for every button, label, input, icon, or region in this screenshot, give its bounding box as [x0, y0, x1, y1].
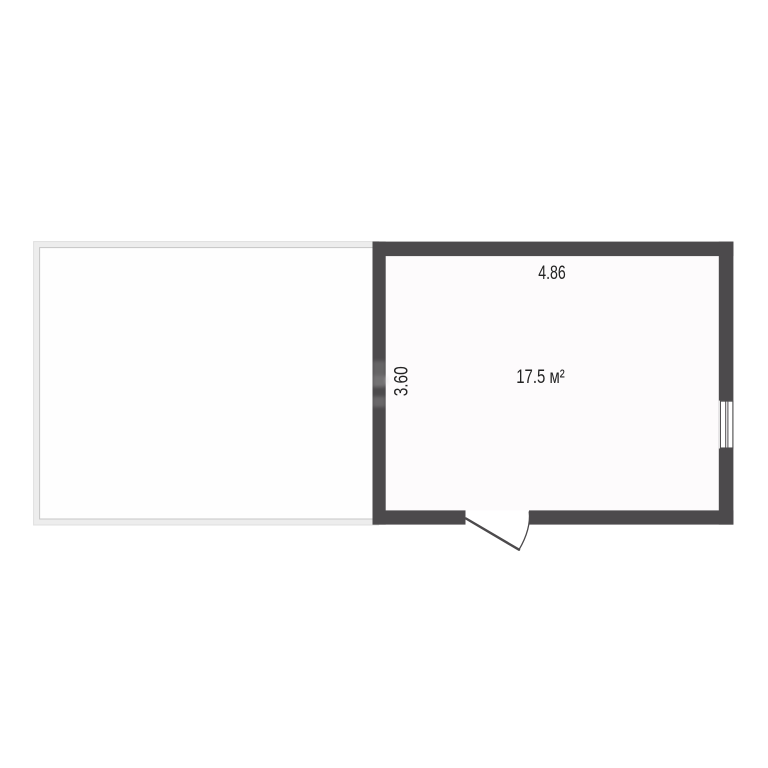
svg-text:17.5 м²: 17.5 м² [516, 367, 565, 388]
svg-text:4.86: 4.86 [538, 263, 566, 284]
svg-text:3.60: 3.60 [391, 366, 412, 396]
